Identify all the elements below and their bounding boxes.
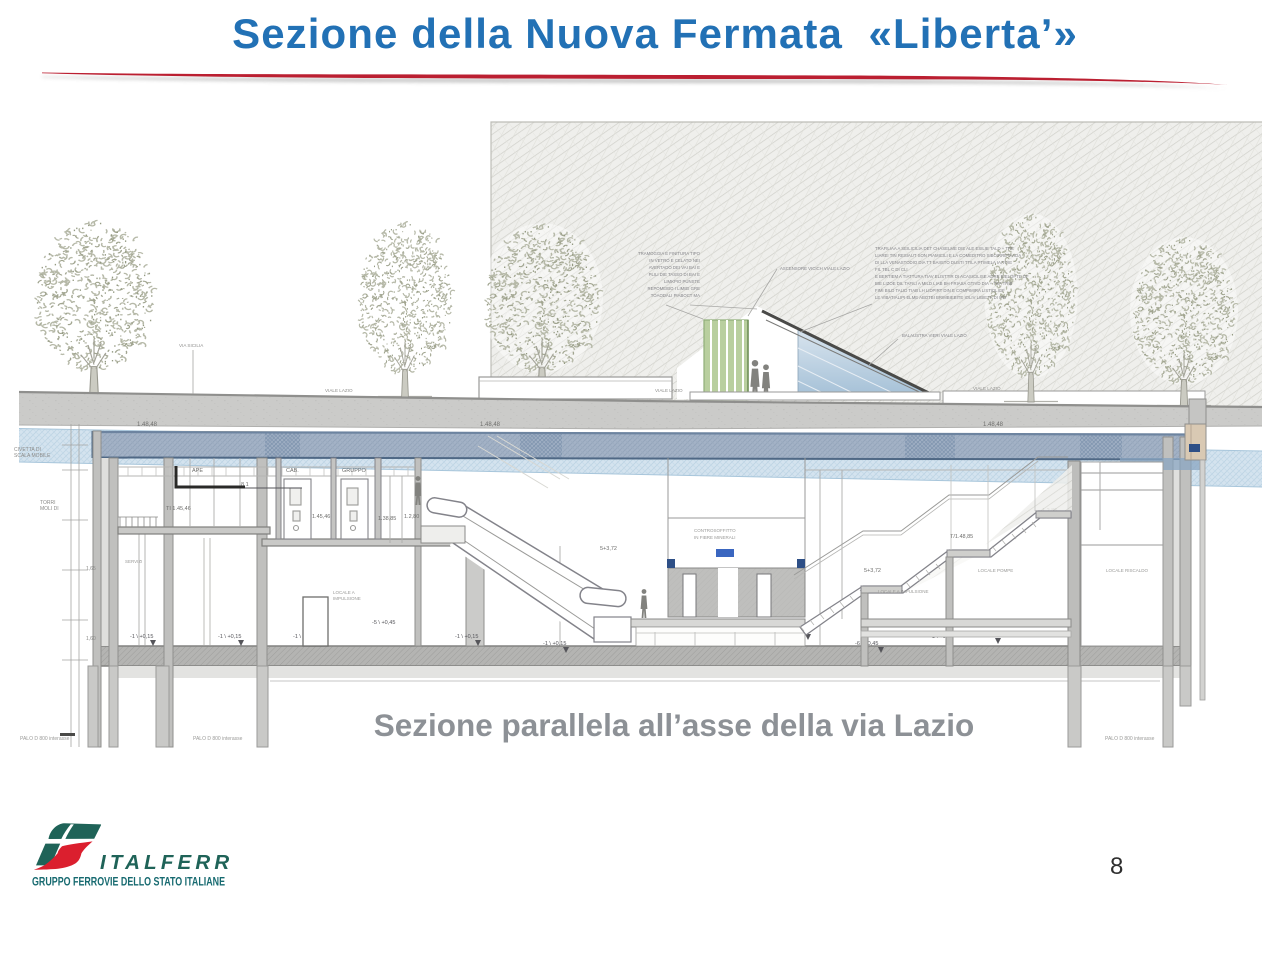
svg-text:GRUPPO FERROVIE DELLO STATO IT: GRUPPO FERROVIE DELLO STATO ITALIANE [32, 875, 225, 889]
svg-text:ITALFERR: ITALFERR [100, 851, 233, 874]
